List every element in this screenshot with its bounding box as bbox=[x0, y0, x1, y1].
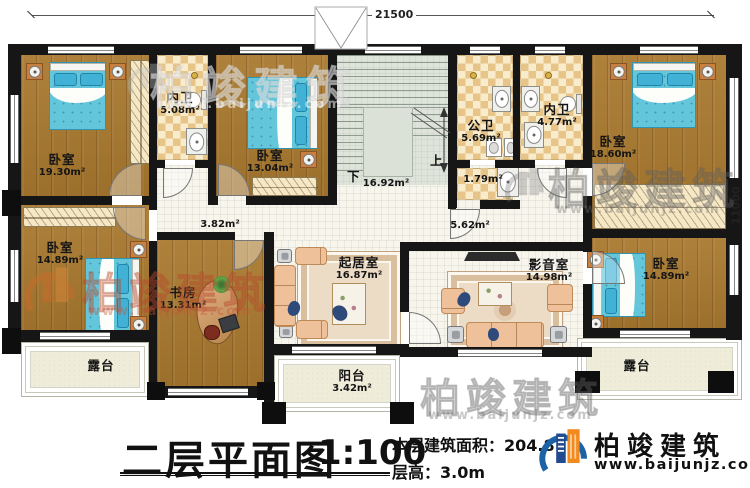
nightstand-3 bbox=[610, 63, 627, 80]
bath-tl-sink bbox=[186, 128, 207, 155]
label-hall-right: 5.62m² bbox=[450, 220, 489, 232]
bath-tl-toilet-tank bbox=[201, 90, 207, 110]
study-plant bbox=[213, 276, 230, 293]
label-hall-left: 3.82m² bbox=[200, 219, 239, 231]
wall-v1 bbox=[149, 44, 157, 205]
bed-pillow bbox=[117, 298, 129, 328]
living-loveseat bbox=[295, 247, 327, 265]
wall-tlbed-bottom-b bbox=[142, 196, 157, 205]
wall-v7-a bbox=[149, 205, 157, 210]
label-bedroom-tl: 卧室 19.30m² bbox=[39, 153, 85, 179]
media-side-table-right bbox=[550, 326, 567, 343]
media-tv bbox=[464, 252, 520, 261]
wall-bathtl-bottom-a bbox=[149, 160, 165, 168]
pillar-terrace-right-a bbox=[575, 371, 600, 393]
wall-tlbed-bottom-a bbox=[8, 196, 112, 205]
bed-pillow bbox=[637, 73, 663, 86]
label-bedroom-br: 卧室 14.89m² bbox=[643, 257, 689, 283]
wardrobe-0 bbox=[130, 60, 150, 164]
living-armchair bbox=[296, 320, 328, 339]
bed-sheet bbox=[49, 88, 106, 103]
wall-bathtr-bottom-a bbox=[513, 160, 535, 168]
wall-v3 bbox=[328, 44, 337, 205]
media-sofa bbox=[466, 322, 544, 348]
window-top-stair bbox=[365, 46, 421, 54]
bath-tr-knob bbox=[545, 72, 552, 79]
bed-pillow bbox=[605, 288, 617, 314]
label-bedroom-tr: 卧室 18.60m² bbox=[590, 135, 636, 161]
window-left-1 bbox=[10, 95, 19, 163]
media-armchair-right bbox=[547, 284, 573, 312]
wardrobe-rail bbox=[140, 61, 142, 165]
floor-height-label: 层高： bbox=[392, 463, 440, 482]
pillar-study-left bbox=[147, 382, 165, 400]
label-bath-tl: 内卫 5.08m² bbox=[160, 91, 199, 117]
floor-height-text: 层高：3.0m bbox=[392, 459, 485, 483]
label-stairwell-area: 16.92m² bbox=[363, 178, 409, 190]
label-study: 书房 13.31m² bbox=[160, 286, 206, 312]
wardrobe-2 bbox=[594, 184, 726, 229]
wall-trbed-bottom bbox=[583, 229, 742, 238]
wall-v2 bbox=[208, 44, 216, 205]
nightstand-1 bbox=[109, 63, 126, 80]
bath-public-knob bbox=[470, 72, 477, 79]
wall-bed2-bottom-a bbox=[208, 196, 218, 205]
wardrobe-rail bbox=[595, 207, 727, 209]
media-coffee-table bbox=[478, 282, 512, 306]
dimension-height: 11000 bbox=[730, 186, 743, 226]
bed-head bbox=[310, 78, 318, 149]
nightstand-2 bbox=[300, 151, 317, 168]
pilaster-left-mid bbox=[2, 190, 21, 216]
bed-pillow bbox=[54, 73, 77, 86]
wall-bed2-bottom-b bbox=[246, 196, 337, 205]
door-terrace-right bbox=[620, 330, 690, 338]
bed-1 bbox=[247, 77, 318, 149]
label-balcony: 阳台 3.42m² bbox=[332, 369, 371, 395]
bed-pillow bbox=[667, 73, 693, 86]
floor-area-label: 本层建筑面积： bbox=[392, 436, 504, 455]
wardrobe-1 bbox=[252, 177, 317, 196]
skylight-canopy bbox=[314, 6, 368, 50]
bed-2 bbox=[632, 62, 696, 128]
pillar-balcony-right bbox=[390, 402, 414, 424]
wall-study-top bbox=[157, 232, 235, 240]
label-stairs-up: 上 bbox=[430, 150, 443, 169]
window-right-1 bbox=[729, 78, 739, 178]
bed-pillow bbox=[80, 73, 103, 86]
pillar-study-right bbox=[257, 382, 275, 400]
bed-sheet bbox=[620, 253, 635, 317]
wall-lobby-bottom-b bbox=[480, 200, 520, 209]
label-bath-public: 公卫 5.69m² bbox=[461, 119, 500, 145]
label-bath-lobby: 1.79m² bbox=[463, 174, 502, 186]
pillar-balcony-left bbox=[262, 402, 286, 424]
study-chair bbox=[204, 325, 220, 340]
window-study-bottom bbox=[168, 388, 248, 396]
label-terrace-left: 露台 bbox=[87, 359, 114, 373]
window-top-3 bbox=[640, 46, 698, 54]
dimension-width: 21500 bbox=[372, 8, 416, 21]
window-mlbed-bottom bbox=[40, 332, 110, 340]
nightstand-0 bbox=[26, 63, 43, 80]
wall-v5 bbox=[513, 44, 520, 168]
media-side-table-left bbox=[447, 326, 464, 343]
label-media: 影音室 14.98m² bbox=[526, 258, 572, 284]
terrace-left-floor bbox=[21, 342, 149, 397]
label-living: 起居室 16.87m² bbox=[336, 256, 382, 282]
label-bedroom-ml: 卧室 14.89m² bbox=[37, 241, 83, 267]
wardrobe-rail bbox=[24, 217, 117, 219]
brand-url: www.baijunjz.com bbox=[594, 457, 750, 473]
bed-pillow bbox=[295, 83, 307, 112]
wall-v8 bbox=[264, 232, 274, 404]
window-top-bath2 bbox=[535, 46, 565, 54]
wall-v6-b bbox=[583, 196, 592, 252]
floor-area-text: 本层建筑面积：204.8 bbox=[392, 432, 555, 456]
living-side-table bbox=[277, 249, 292, 263]
wall-media-top bbox=[400, 242, 583, 251]
bed-pillow bbox=[295, 116, 307, 145]
pilaster-left-bottom bbox=[2, 328, 21, 354]
floor-plan-page: 卧室 19.30m² 内卫 5.08m² 卧室 13.04m² 16.92m² … bbox=[0, 0, 750, 488]
bed-head bbox=[50, 63, 106, 71]
window-top-1 bbox=[48, 46, 114, 54]
nightstand-4 bbox=[699, 63, 716, 80]
pillar-terrace-right-b bbox=[708, 371, 734, 393]
wall-bathtl-bottom-b bbox=[195, 160, 216, 168]
label-bedroom-t2: 卧室 13.04m² bbox=[247, 149, 293, 175]
window-top-2 bbox=[240, 46, 302, 54]
bed-pillow bbox=[117, 264, 129, 294]
door-balcony-slider bbox=[292, 346, 376, 354]
bed-sheet bbox=[99, 258, 114, 332]
window-right-2 bbox=[729, 245, 739, 295]
title-underline bbox=[120, 472, 390, 476]
bed-0 bbox=[49, 62, 106, 130]
bath-tr-toilet-tank bbox=[576, 94, 582, 114]
watermark-bottom-url: www.baijunjz.com bbox=[428, 408, 593, 423]
wall-v7-b bbox=[149, 241, 157, 397]
window-top-bath1 bbox=[470, 46, 500, 54]
window-media-bottom bbox=[458, 349, 542, 357]
bath-tl-fixture-knob bbox=[191, 72, 198, 79]
nightstand-5 bbox=[130, 241, 147, 258]
wall-lobby-bottom-a bbox=[448, 200, 456, 209]
bed-sheet bbox=[277, 77, 292, 149]
wardrobe-3 bbox=[23, 207, 116, 227]
wardrobe-rail bbox=[253, 187, 318, 189]
bath-public-sink bbox=[492, 86, 511, 112]
floor-height-value: 3.0m bbox=[440, 463, 485, 482]
label-stairs-down: 下 bbox=[347, 166, 360, 185]
media-person-figure-2 bbox=[488, 328, 499, 341]
window-left-2 bbox=[10, 250, 19, 302]
label-terrace-right: 露台 bbox=[623, 359, 650, 373]
bed-head bbox=[633, 63, 696, 71]
living-sofa bbox=[274, 265, 296, 327]
page-title: 二层平面图 bbox=[122, 428, 337, 486]
bed-sheet bbox=[632, 88, 696, 103]
brand-logo-icon bbox=[538, 423, 590, 477]
label-bath-tr: 内卫 4.77m² bbox=[537, 103, 576, 129]
wall-v9 bbox=[400, 242, 409, 312]
